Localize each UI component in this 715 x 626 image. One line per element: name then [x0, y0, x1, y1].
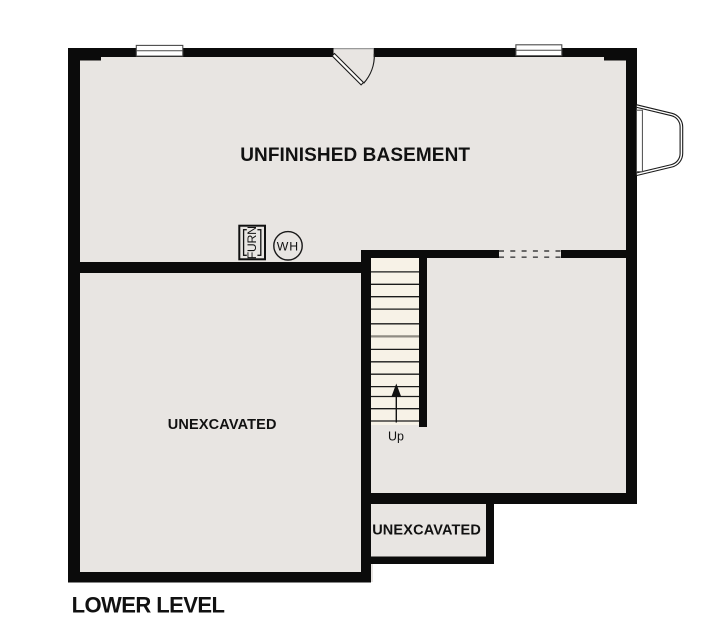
- svg-text:FURN: FURN: [245, 226, 259, 259]
- svg-text:UNEXCAVATED: UNEXCAVATED: [168, 417, 277, 433]
- svg-text:Up: Up: [388, 430, 404, 444]
- svg-text:UNFINISHED BASEMENT: UNFINISHED BASEMENT: [240, 145, 470, 166]
- svg-text:UNEXCAVATED: UNEXCAVATED: [372, 523, 481, 539]
- svg-text:WH: WH: [277, 240, 299, 254]
- svg-text:LOWER LEVEL: LOWER LEVEL: [72, 593, 225, 618]
